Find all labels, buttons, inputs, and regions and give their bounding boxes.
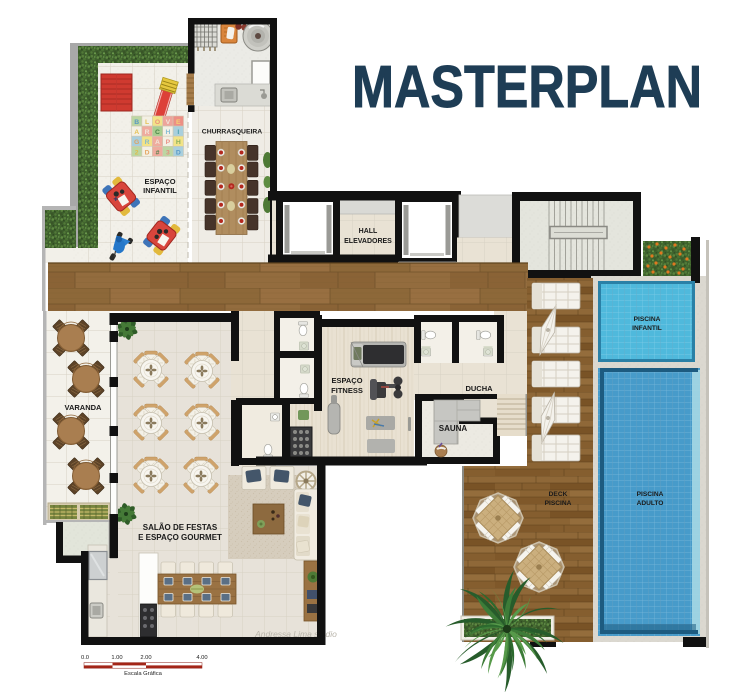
svg-text:SALÃO DE FESTAS: SALÃO DE FESTAS	[143, 523, 218, 532]
svg-text:O: O	[155, 119, 160, 126]
svg-text:R: R	[145, 139, 150, 146]
svg-text:#: #	[156, 149, 160, 156]
svg-text:R: R	[145, 129, 150, 136]
svg-text:ADULTO: ADULTO	[637, 500, 664, 507]
svg-text:PISCINA: PISCINA	[637, 491, 664, 498]
svg-text:H: H	[176, 139, 181, 146]
svg-text:ELEVADORES: ELEVADORES	[344, 238, 392, 245]
svg-text:D: D	[145, 149, 150, 156]
svg-text:PISCINA: PISCINA	[545, 500, 572, 507]
svg-text:V: V	[166, 119, 171, 126]
svg-text:PISCINA: PISCINA	[634, 316, 661, 323]
svg-text:HALL: HALL	[359, 228, 378, 235]
svg-text:I: I	[177, 129, 179, 136]
svg-text:D: D	[176, 149, 181, 156]
svg-text:2.00: 2.00	[140, 655, 151, 661]
svg-text:3: 3	[166, 149, 170, 156]
svg-text:A: A	[134, 129, 139, 136]
svg-text:4.00: 4.00	[196, 655, 207, 661]
svg-text:DUCHA: DUCHA	[465, 384, 493, 393]
svg-text:E ESPAÇO GOURMET: E ESPAÇO GOURMET	[138, 533, 222, 542]
svg-text:B: B	[134, 119, 139, 126]
svg-text:CHURRASQUEIRA: CHURRASQUEIRA	[202, 129, 263, 136]
svg-text:1.00: 1.00	[111, 655, 122, 661]
svg-text:C: C	[155, 129, 160, 136]
svg-text:INFANTIL: INFANTIL	[632, 325, 662, 332]
svg-text:Escala Gráfica: Escala Gráfica	[124, 671, 162, 677]
svg-text:2: 2	[135, 149, 139, 156]
svg-text:H: H	[165, 129, 170, 136]
svg-text:FITNESS: FITNESS	[331, 386, 363, 395]
svg-text:P: P	[166, 139, 171, 146]
svg-text:G: G	[134, 139, 139, 146]
svg-text:0.0: 0.0	[81, 655, 89, 661]
svg-text:A: A	[155, 139, 160, 146]
svg-text:L: L	[145, 119, 149, 126]
svg-text:DECK: DECK	[549, 491, 568, 498]
svg-text:MASTERPLAN: MASTERPLAN	[352, 54, 702, 120]
svg-text:SAUNA: SAUNA	[439, 424, 468, 433]
svg-text:INFANTIL: INFANTIL	[143, 186, 177, 195]
svg-text:VARANDA: VARANDA	[65, 403, 103, 412]
svg-text:ESPAÇO: ESPAÇO	[331, 376, 362, 385]
svg-text:ESPAÇO: ESPAÇO	[144, 177, 175, 186]
svg-text:E: E	[176, 119, 181, 126]
